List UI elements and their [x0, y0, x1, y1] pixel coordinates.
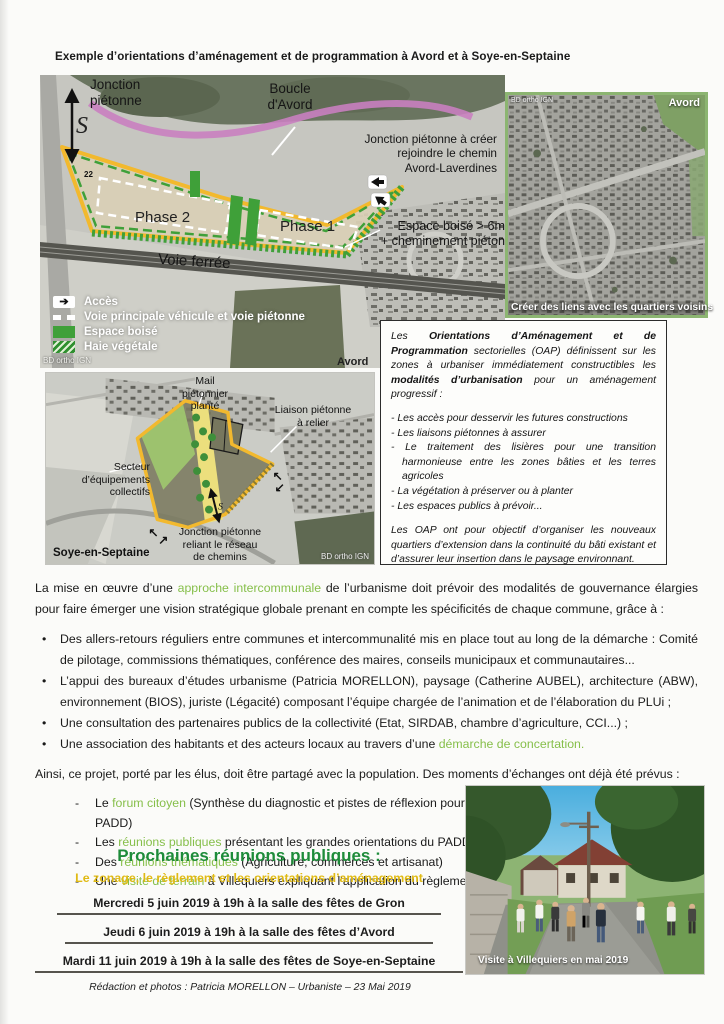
espace-boise-label: Espace boisé > 6m + cheminement piéton	[337, 219, 505, 250]
legend-row: Espace boisé	[53, 326, 305, 338]
phase2-label: Phase 2	[135, 209, 190, 226]
footer-credit: Rédaction et photos : Patricia MORELLON …	[35, 982, 465, 993]
liaison-pietonne-label: Liaison piétonne à relier	[259, 404, 367, 429]
legend-icon	[53, 296, 75, 308]
legend-row: Haie végétale	[53, 341, 305, 353]
legend-label: Accès	[84, 296, 118, 308]
legend-icon	[53, 341, 75, 353]
site-visit-caption: Visite à Villequiers en mai 2019	[478, 955, 628, 966]
mail-pietonnier-label: Mail piétonnier planté	[166, 375, 244, 413]
legend-row: Accès	[53, 296, 305, 308]
legend-label: Espace boisé	[84, 326, 158, 338]
meeting-date: Mardi 11 juin 2019 à 19h à la salle des …	[35, 954, 463, 973]
bullet-item: Des allers-retours réguliers entre commu…	[35, 629, 698, 671]
map-credit: BD ortho IGN	[43, 356, 91, 365]
meetings-subtitle: Le zonage, le règlement et les orientati…	[35, 871, 463, 885]
oap-outro: Les OAP ont pour objectif d’organiser le…	[391, 524, 656, 568]
soye-map: S ↖↗ ↖↙ Mail piétonnier planté Liaison p…	[45, 372, 375, 565]
soye-name-label: Soye-en-Septaine	[53, 547, 150, 559]
svg-text:S: S	[218, 502, 223, 513]
legend-icon	[53, 315, 75, 320]
jonction-pietonne-label: Jonction piétonne	[90, 77, 142, 110]
page-title: Exemple d’orientations d’aménagement et …	[55, 50, 710, 63]
oap-intro: Les Orientations d’Aménagement et de Pro…	[391, 330, 656, 403]
oap-item: Les espaces publics à prévoir...	[391, 500, 656, 515]
legend-label: Haie végétale	[84, 341, 158, 353]
oap-definition-box: Les Orientations d’Aménagement et de Pro…	[380, 320, 667, 565]
paragraph-intercommunale: La mise en œuvre d’une approche intercom…	[35, 578, 698, 620]
dash-item: Le forum citoyen (Synthèse du diagnostic…	[75, 794, 495, 833]
boucle-avord-label: Boucle d'Avord	[240, 81, 340, 114]
bullet-item: L’appui des bureaux d’études urbanisme (…	[35, 671, 698, 713]
legend-icon	[53, 326, 75, 338]
soye-map-credit: BD ortho IGN	[321, 552, 369, 561]
bullet-item: Une consultation des partenaires publics…	[35, 713, 698, 734]
oap-items: Les accès pour desservir les futures con…	[391, 412, 656, 514]
svg-text:↙: ↙	[275, 481, 285, 495]
document-page: Exemple d’orientations d’aménagement et …	[0, 0, 724, 1024]
legend-row: Voie principale véhicule et voie piétonn…	[53, 311, 305, 323]
svg-text:↖: ↖	[148, 525, 158, 539]
secteur-equipements-label: Secteur d’équipements collectifs	[48, 461, 150, 499]
site-visit-graphic	[466, 786, 704, 974]
scan-artifact-edge	[0, 0, 9, 1024]
jonction-creer-label: Jonction piétonne à créer rejoindre le c…	[335, 132, 497, 175]
photo-credit: BD ortho IGN	[511, 97, 553, 104]
bullet-list: Des allers-retours réguliers entre commu…	[35, 629, 698, 755]
map-corner-label: Avord	[337, 356, 368, 369]
oap-item: Les accès pour desservir les futures con…	[391, 412, 656, 427]
site-visit-photo: Visite à Villequiers en mai 2019	[465, 785, 705, 975]
avord-aerial-graphic	[508, 95, 705, 315]
avord-aerial-photo: BD ortho IGN Avord Créer des liens avec …	[505, 92, 708, 318]
jonction-reseau-label: Jonction piétonne reliant le réseau de c…	[164, 526, 276, 564]
meetings-section: Prochaines réunions publiques : Le zonag…	[35, 846, 463, 973]
oap-item: La végétation à préserver ou à planter	[391, 485, 656, 500]
parcel-22-label: 22	[84, 170, 93, 179]
phase1-label: Phase 1	[280, 218, 335, 235]
photo-town-label: Avord	[669, 97, 700, 109]
meeting-date: Jeudi 6 juin 2019 à 19h à la salle des f…	[65, 925, 433, 944]
oap-item: Le traitement des lisières pour une tran…	[391, 441, 656, 485]
s-symbol: S	[76, 113, 88, 139]
bullet-item: Une association des habitants et des act…	[35, 734, 698, 755]
meetings-title: Prochaines réunions publiques :	[35, 846, 463, 866]
meeting-date: Mercredi 5 juin 2019 à 19h à la salle de…	[57, 896, 441, 915]
map-legend: Accès Voie principale véhicule et voie p…	[53, 296, 305, 356]
oap-item: Les liaisons piétonnes à assurer	[391, 427, 656, 442]
legend-label: Voie principale véhicule et voie piétonn…	[84, 311, 305, 323]
photo-caption: Créer des liens avec les quartiers voisi…	[511, 302, 702, 313]
paragraph-projet: Ainsi, ce projet, porté par les élus, do…	[35, 764, 698, 785]
